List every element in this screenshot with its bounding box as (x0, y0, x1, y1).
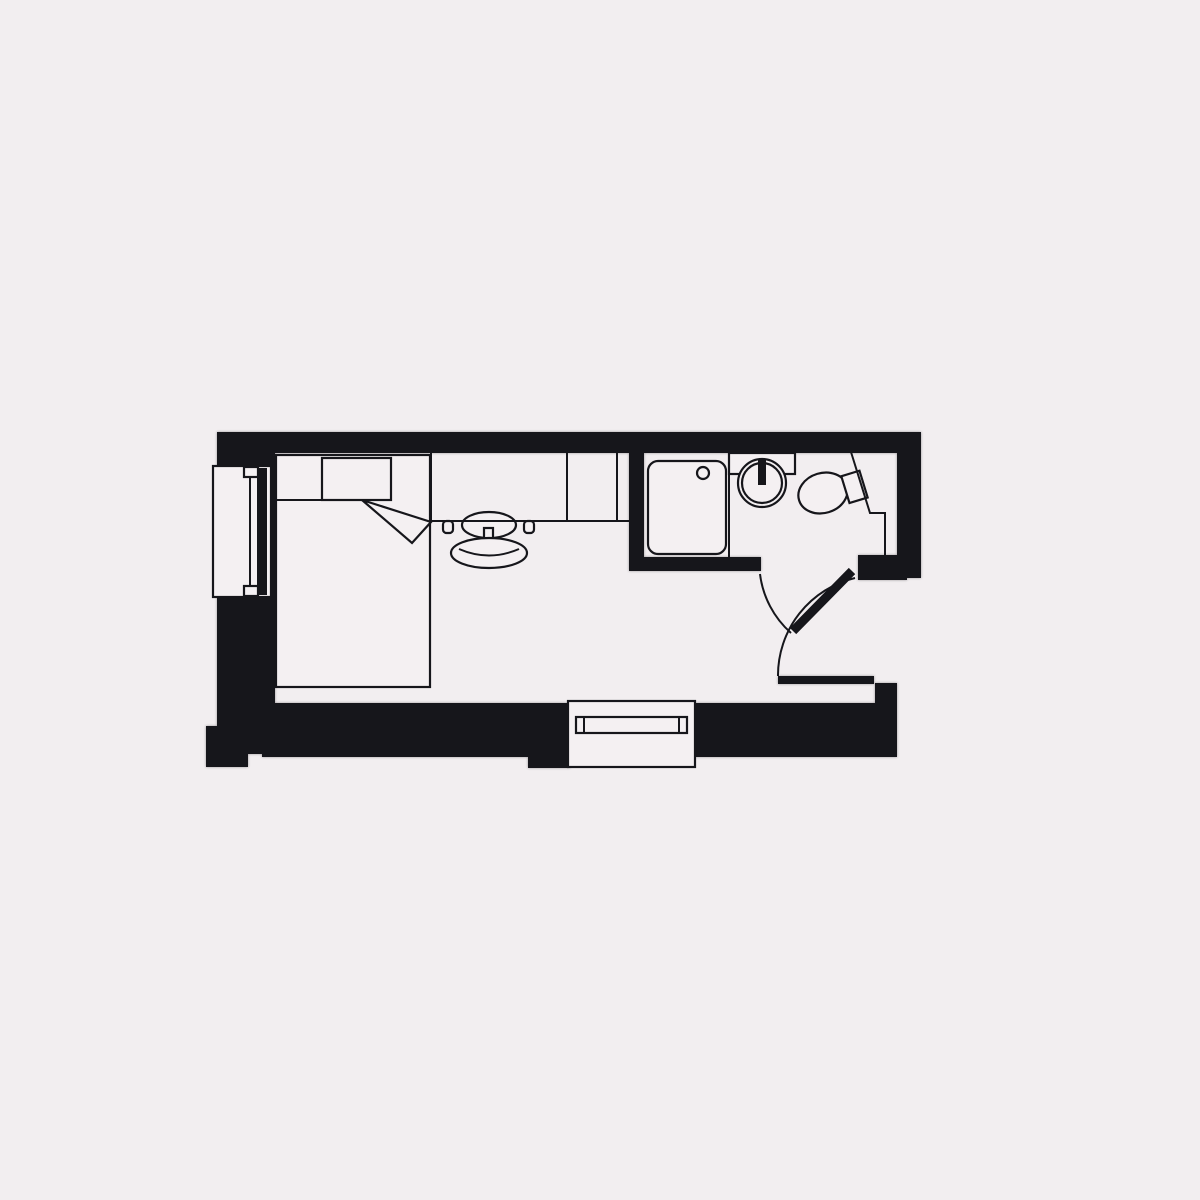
bathroom-niche-outline (851, 452, 885, 556)
bottom-right-block (875, 683, 897, 757)
bottom-wall-left (262, 703, 570, 757)
bottom-window-glazing (576, 717, 687, 733)
faucet (758, 460, 766, 485)
bathroom-door-leaf (793, 571, 852, 631)
bottom-wall-step (528, 750, 570, 768)
left-window-cap-bottom (244, 586, 258, 596)
entry-threshold-bar (778, 676, 874, 684)
floor-plan-drawing (0, 0, 1200, 1200)
shower-tray (648, 461, 726, 554)
desk (431, 453, 617, 521)
top-wall (217, 432, 921, 453)
bathroom-door-swing-arc (760, 574, 791, 633)
doors (760, 571, 855, 676)
left-window-cap-top (244, 467, 258, 477)
bottom-wall-right (695, 703, 897, 757)
entry-door-swing-arc (778, 578, 855, 676)
chair-armrest-left (443, 521, 453, 533)
shower-drain (697, 467, 709, 479)
chair-armrest-right (524, 521, 534, 533)
bed (276, 455, 431, 687)
bathroom-partition-horizontal (629, 557, 761, 571)
chair-seat (451, 538, 527, 568)
bathroom-partition-vertical (629, 450, 644, 558)
bathroom (648, 452, 885, 557)
left-window-unit (213, 466, 271, 597)
pillow (322, 458, 391, 500)
bottom-window (568, 701, 695, 767)
door-hinge-stub (858, 555, 907, 580)
left-window-sash (257, 468, 267, 595)
left-wall-foot (206, 726, 248, 767)
floor-plan-canvas (0, 0, 1200, 1200)
